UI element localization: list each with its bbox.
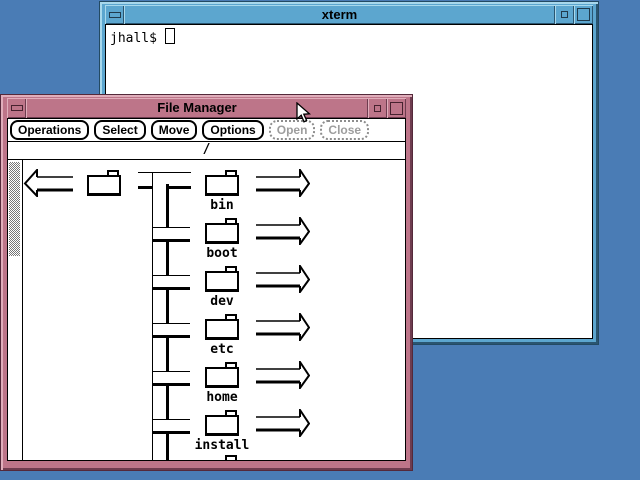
iconify-icon — [11, 105, 23, 111]
file-manager-client: Operations Select Move Options Open Clos… — [7, 118, 406, 461]
desktop: xterm jhall$ File Manager — [0, 0, 640, 480]
file-manager-window: File Manager Operations Select Move Opti… — [1, 95, 412, 470]
open-arrow-icon[interactable] — [254, 361, 310, 389]
open-arrow-icon[interactable] — [254, 169, 310, 197]
maximize-button[interactable] — [387, 98, 406, 118]
terminal-prompt: jhall$ — [110, 31, 157, 46]
folder-label: bin — [172, 198, 272, 213]
tree-line-branch-dev — [153, 275, 190, 290]
folder-label: dev — [172, 294, 272, 309]
folder-icon-dev[interactable] — [205, 266, 239, 292]
folder-icon-home[interactable] — [205, 362, 239, 388]
folder-icon-etc[interactable] — [205, 314, 239, 340]
scrollbar-thumb[interactable] — [9, 162, 20, 256]
restore-button[interactable] — [555, 5, 574, 24]
folder-label: boot — [172, 246, 272, 261]
folder-icon-bin[interactable] — [205, 170, 239, 196]
parent-arrow-icon[interactable] — [23, 169, 75, 197]
folder-icon-boot[interactable] — [205, 218, 239, 244]
iconify-icon — [109, 12, 121, 18]
path-display: / — [7, 141, 406, 160]
mouse-cursor — [296, 102, 312, 124]
open-arrow-icon[interactable] — [254, 217, 310, 245]
file-manager-window-title: File Manager — [26, 98, 368, 118]
menu-button-operations[interactable]: Operations — [10, 120, 89, 140]
tree-line-branch-boot — [153, 227, 190, 242]
xterm-titlebar[interactable]: xterm — [105, 5, 593, 24]
menu-button-options[interactable]: Options — [202, 120, 263, 140]
maximize-icon — [577, 8, 590, 21]
folder-icon-partial[interactable] — [205, 455, 239, 460]
scrollbar[interactable] — [8, 160, 23, 460]
xterm-window-title: xterm — [124, 5, 555, 24]
menu-bar: Operations Select Move Options Open Clos… — [8, 119, 405, 141]
menu-button-move[interactable]: Move — [151, 120, 198, 140]
restore-button[interactable] — [368, 98, 387, 118]
folder-label: etc — [172, 342, 272, 357]
file-manager-titlebar[interactable]: File Manager — [7, 98, 406, 118]
tree-line-branch-etc — [153, 323, 190, 338]
open-arrow-icon[interactable] — [254, 265, 310, 293]
terminal-cursor — [165, 28, 175, 44]
iconify-button[interactable] — [7, 98, 26, 118]
maximize-button[interactable] — [574, 5, 593, 24]
directory-tree-view: bin boot dev — [23, 160, 405, 460]
menu-button-close: Close — [320, 120, 369, 140]
restore-icon — [374, 105, 381, 112]
open-arrow-icon[interactable] — [254, 409, 310, 437]
iconify-button[interactable] — [105, 5, 124, 24]
restore-icon — [561, 11, 568, 18]
folder-icon-install[interactable] — [205, 410, 239, 436]
tree-line-branch-install — [153, 419, 190, 434]
menu-button-select[interactable]: Select — [94, 120, 145, 140]
folder-icon-root[interactable] — [87, 170, 121, 196]
folder-label: install — [172, 438, 272, 453]
maximize-icon — [390, 102, 403, 115]
tree-line-branch-home — [153, 371, 190, 386]
folder-label: home — [172, 390, 272, 405]
terminal-prompt-line: jhall$ — [106, 25, 592, 46]
open-arrow-icon[interactable] — [254, 313, 310, 341]
